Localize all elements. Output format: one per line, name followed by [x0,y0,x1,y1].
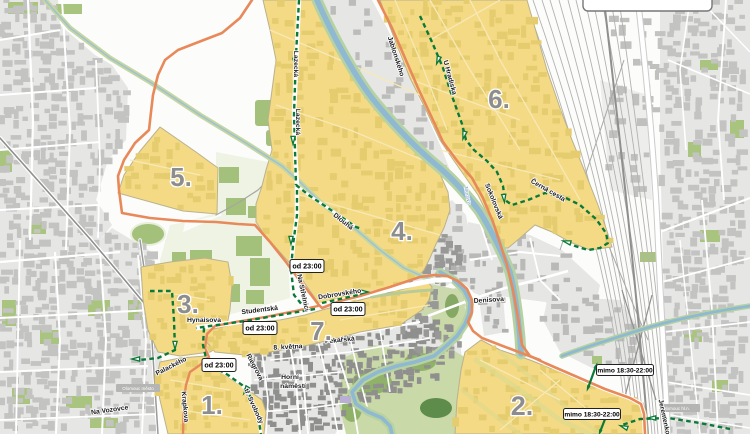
svg-text:mimo 18:30-22:00: mimo 18:30-22:00 [564,411,620,418]
svg-text:od 23:00: od 23:00 [245,323,274,332]
svg-text:4.: 4. [391,216,413,246]
svg-text:Lazecká: Lazecká [294,109,301,136]
svg-text:6.: 6. [488,84,510,114]
svg-text:Horní: Horní [281,374,300,381]
svg-text:mimo 18:30-22:00: mimo 18:30-22:00 [597,367,653,374]
svg-text:Lazecká: Lazecká [292,51,299,78]
svg-text:2.: 2. [511,391,534,421]
svg-text:od 23:00: od 23:00 [333,304,362,313]
svg-text:od 23:00: od 23:00 [204,360,233,369]
svg-text:7.: 7. [310,316,332,346]
svg-text:od 23:00: od 23:00 [292,261,321,270]
svg-text:1.: 1. [201,390,223,420]
svg-text:Olomouc město: Olomouc město [122,386,154,391]
svg-text:5.: 5. [170,162,192,192]
svg-text:3.: 3. [177,289,199,319]
svg-text:náměstí: náměstí [280,383,307,390]
